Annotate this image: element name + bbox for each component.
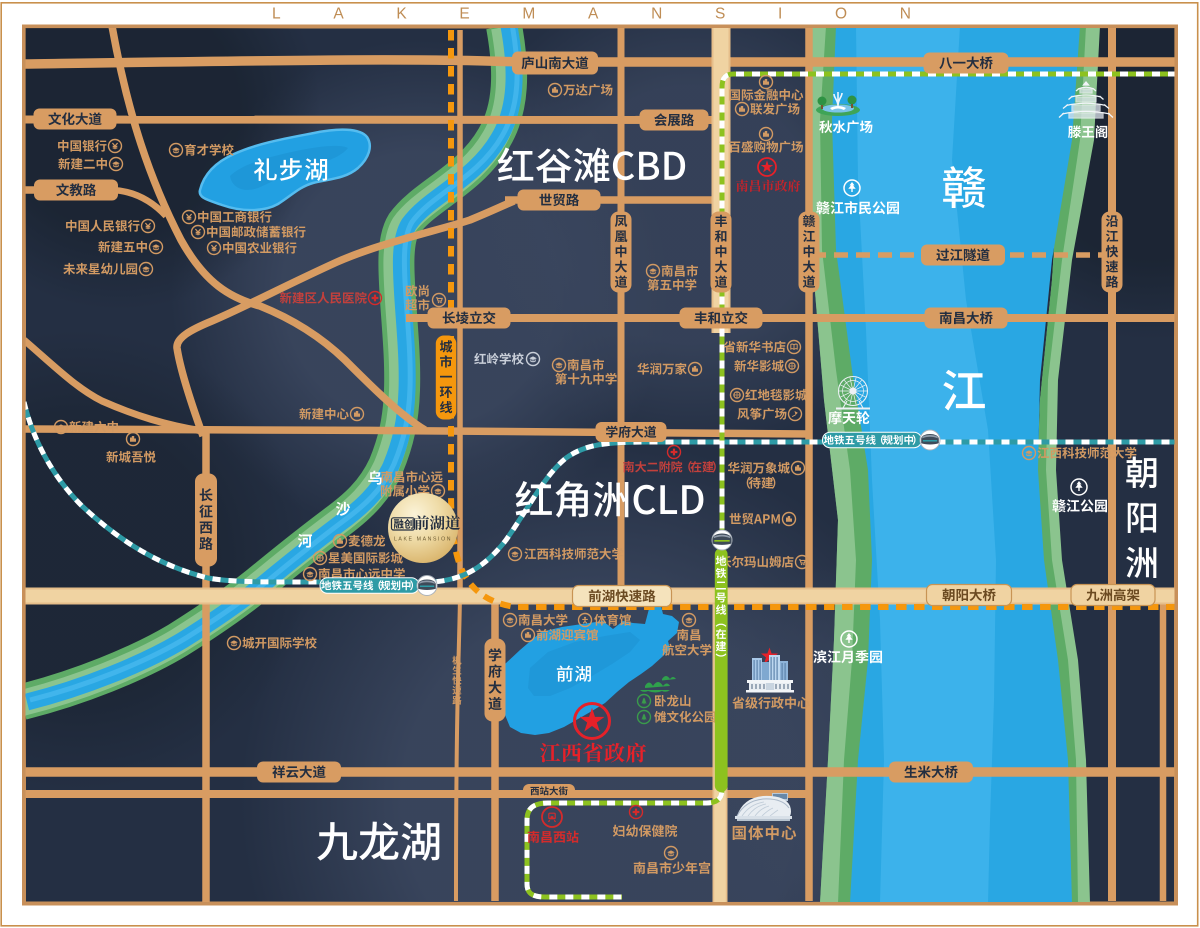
svg-text:LAKEMANSION: LAKEMANSION [272, 6, 964, 23]
svg-text:LAKE MANSION: LAKE MANSION [394, 537, 452, 543]
